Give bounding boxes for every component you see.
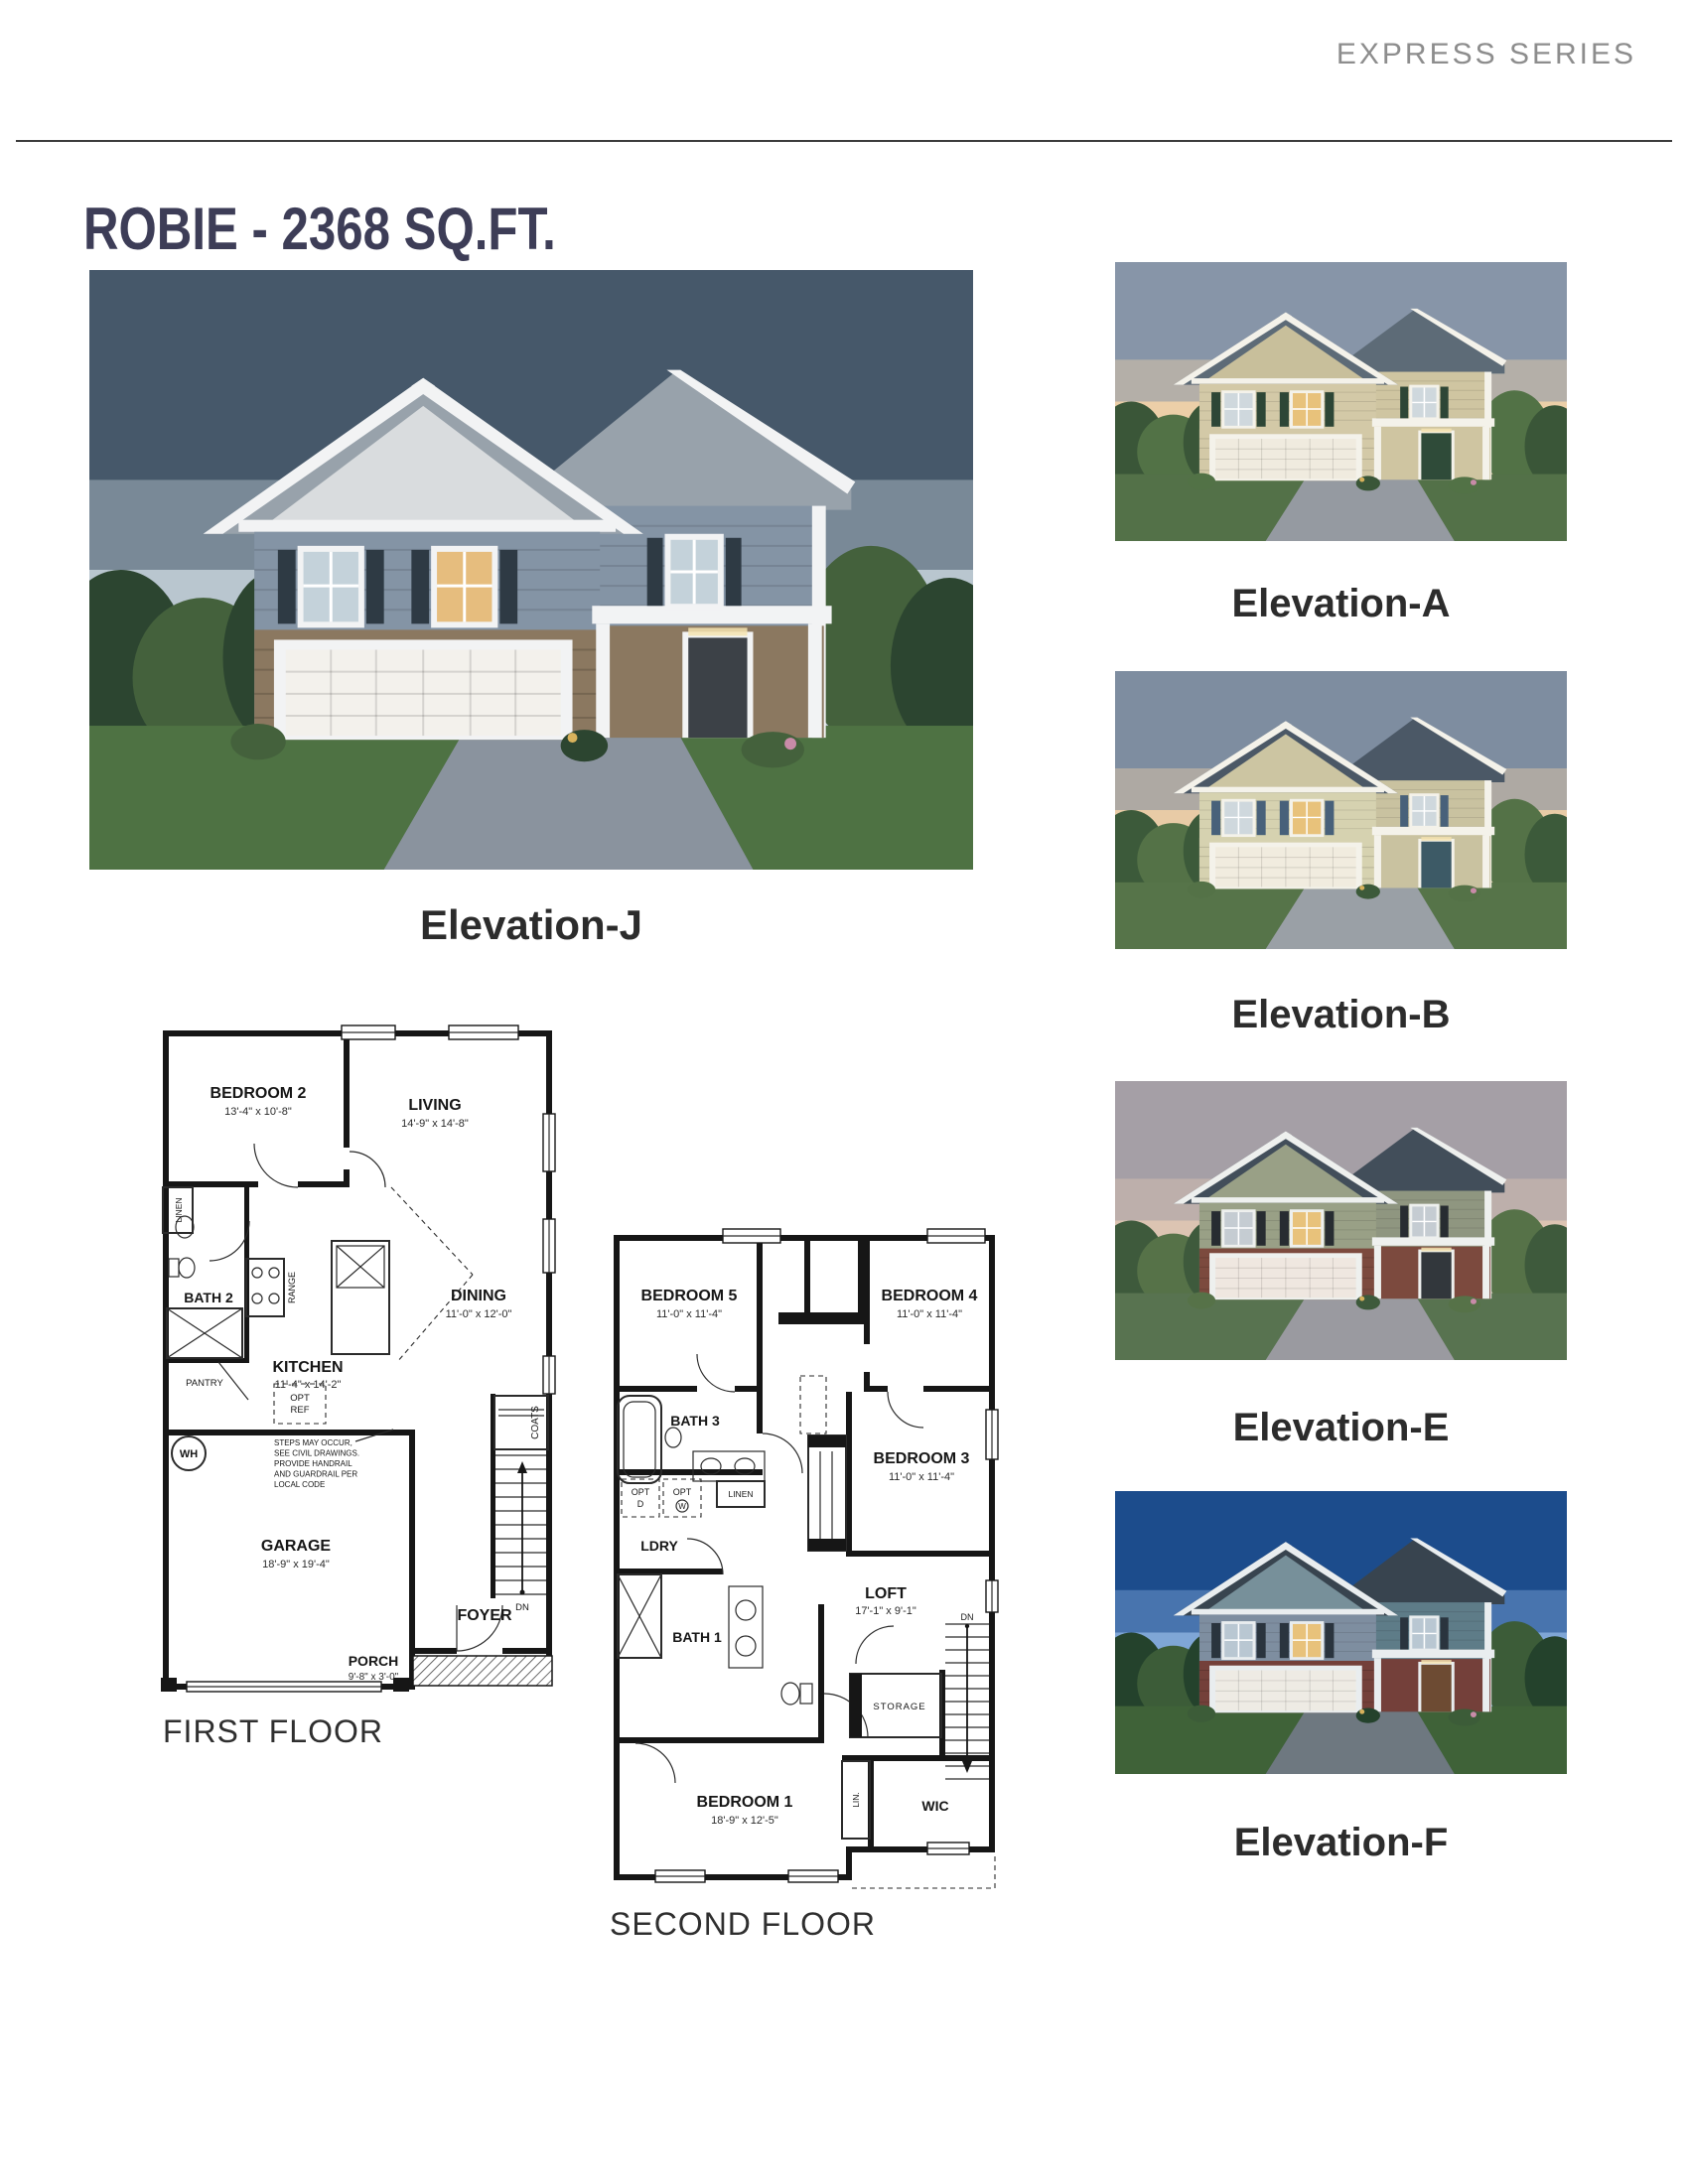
bath2-label: BATH 2 (184, 1290, 233, 1305)
elevation-f-image (1115, 1491, 1567, 1774)
bedroom3-label: BEDROOM 3 (874, 1450, 970, 1467)
bedroom1-label: BEDROOM 1 (697, 1794, 793, 1811)
stairs (495, 1455, 546, 1594)
bedroom2-dims: 13'-4" x 10'-8" (224, 1106, 292, 1118)
elevation-a-art (1115, 262, 1567, 541)
opt-ref-label-2: REF (291, 1405, 310, 1416)
elevation-a-label: Elevation-A (1115, 582, 1567, 626)
elevation-b-image (1115, 671, 1567, 949)
stairs-dn-label: DN (515, 1602, 529, 1613)
lin-label: LIN. (851, 1792, 861, 1808)
code-note: STEPS MAY OCCUR, SEE CIVIL DRAWINGS. PRO… (274, 1430, 393, 1489)
porch-label: PORCH (349, 1653, 399, 1669)
series-header: EXPRESS SERIES (1336, 38, 1636, 71)
svg-text:STEPS MAY OCCUR,: STEPS MAY OCCUR, (274, 1438, 352, 1447)
elevation-e-image (1115, 1081, 1567, 1360)
bedroom4-dims: 11'-0" x 11'-4" (897, 1308, 962, 1320)
first-floor-plan: LINEN BATH 2 RANGE OPT REF PANTRY WH STE… (157, 1023, 560, 1709)
elevation-f-art (1115, 1491, 1567, 1774)
elevation-f-label: Elevation-F (1115, 1821, 1567, 1865)
opt-d-label-2: D (637, 1499, 644, 1509)
bedroom1-dims: 18'-9" x 12'-5" (711, 1815, 778, 1827)
garage-label: GARAGE (261, 1538, 332, 1555)
stairs-dn-label-2f: DN (961, 1612, 974, 1622)
porch-hatch (413, 1656, 552, 1686)
bedroom5-dims: 11'-0" x 11'-4" (656, 1308, 722, 1320)
wic-label: WIC (921, 1798, 948, 1814)
svg-text:AND GUARDRAIL PER: AND GUARDRAIL PER (274, 1470, 357, 1479)
opt-ref-label-1: OPT (290, 1393, 310, 1404)
bath1-label: BATH 1 (672, 1629, 722, 1645)
opt-w-label-2: W (678, 1502, 686, 1511)
elevation-e-art (1115, 1081, 1567, 1360)
pantry-label: PANTRY (186, 1378, 223, 1389)
dining-dims: 11'-0" x 12'-0" (446, 1308, 512, 1320)
range-label: RANGE (287, 1272, 297, 1303)
opt-d-label-1: OPT (632, 1487, 650, 1497)
page-title: ROBIE - 2368 SQ.FT. (83, 195, 556, 263)
second-floor-plan: BATH 3 OPT D OPT W LINEN LDRY BATH 1 STO… (606, 1227, 1003, 1902)
foyer-label: FOYER (457, 1607, 512, 1624)
bedroom5-label: BEDROOM 5 (641, 1288, 738, 1304)
loft-label: LOFT (865, 1585, 907, 1602)
water-heater-label: WH (180, 1448, 198, 1460)
bedroom3-dims: 11'-0" x 11'-4" (889, 1471, 954, 1483)
elevation-b-label: Elevation-B (1115, 993, 1567, 1037)
hero-elevation-label: Elevation-J (89, 901, 973, 949)
elevation-b-art (1115, 671, 1567, 949)
first-floor-title: FIRST FLOOR (163, 1713, 383, 1750)
dining-label: DINING (451, 1288, 506, 1304)
svg-text:SEE CIVIL DRAWINGS.: SEE CIVIL DRAWINGS. (274, 1449, 359, 1458)
second-floor-title: SECOND FLOOR (610, 1906, 876, 1943)
bedroom4-label: BEDROOM 4 (882, 1288, 978, 1304)
svg-text:LOCAL CODE: LOCAL CODE (274, 1480, 325, 1489)
header-divider (16, 140, 1672, 142)
bedroom2-label: BEDROOM 2 (211, 1085, 307, 1102)
svg-text:PROVIDE HANDRAIL: PROVIDE HANDRAIL (274, 1459, 352, 1468)
storage-label: STORAGE (873, 1702, 925, 1712)
spec-sheet-page: EXPRESS SERIES ROBIE - 2368 SQ.FT. Eleva… (0, 0, 1688, 2184)
porch-dims: 9'-8" x 3'-0" (349, 1672, 399, 1683)
loft-dims: 17'-1" x 9'-1" (855, 1605, 916, 1617)
living-dims: 14'-9" x 14'-8" (401, 1118, 469, 1130)
kitchen-label: KITCHEN (272, 1359, 343, 1376)
hero-house-art (89, 270, 973, 870)
elevation-e-label: Elevation-E (1115, 1406, 1567, 1450)
bath3-label: BATH 3 (670, 1413, 720, 1429)
linen-label-2f: LINEN (728, 1489, 753, 1499)
living-label: LIVING (408, 1097, 461, 1114)
coats-label: COATS (530, 1406, 541, 1439)
ldry-label: LDRY (640, 1538, 678, 1554)
garage-dims: 18'-9" x 19'-4" (262, 1559, 330, 1570)
kitchen-dims: 11'-4" x 14'-2" (275, 1379, 342, 1391)
elevation-a-image (1115, 262, 1567, 541)
hero-elevation-image (89, 270, 973, 870)
opt-w-label-1: OPT (673, 1487, 692, 1497)
